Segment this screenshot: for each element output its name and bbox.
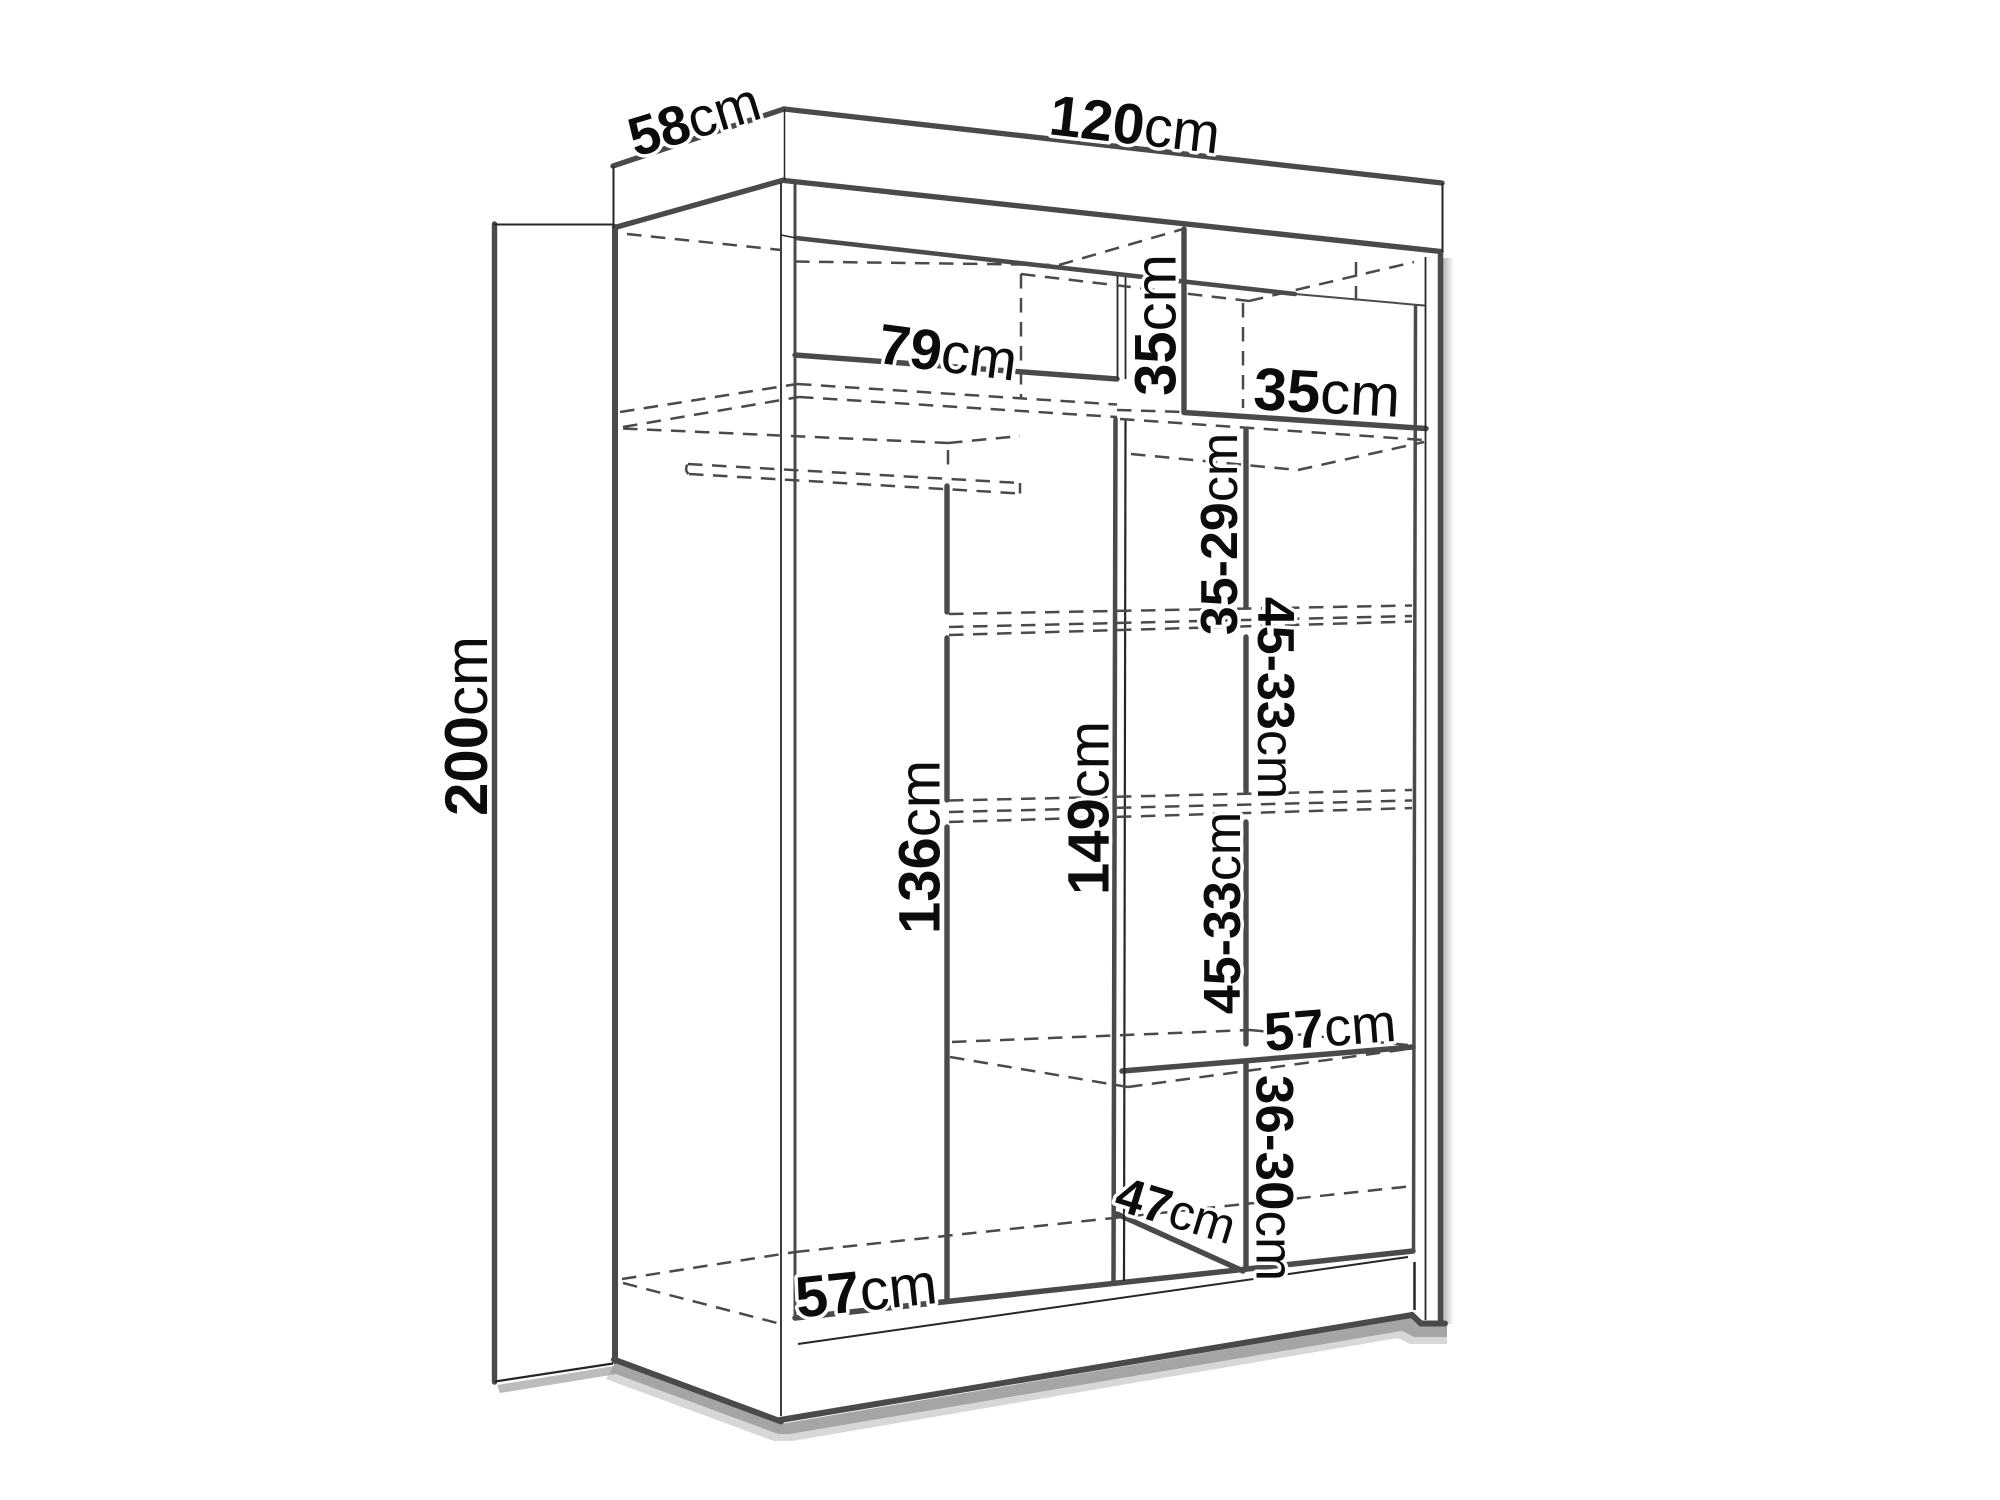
svg-text:35cm: 35cm [1252,355,1402,430]
svg-text:149cm: 149cm [1056,721,1121,895]
svg-text:35cm: 35cm [1123,254,1188,396]
svg-text:57cm: 57cm [1262,993,1398,1063]
svg-text:45-33cm: 45-33cm [1246,597,1304,799]
svg-text:36-30cm: 36-30cm [1244,1075,1303,1281]
svg-text:200cm: 200cm [433,636,500,816]
svg-text:45-33cm: 45-33cm [1194,812,1252,1014]
svg-text:136cm: 136cm [887,760,952,934]
svg-text:35-29cm: 35-29cm [1191,433,1249,635]
